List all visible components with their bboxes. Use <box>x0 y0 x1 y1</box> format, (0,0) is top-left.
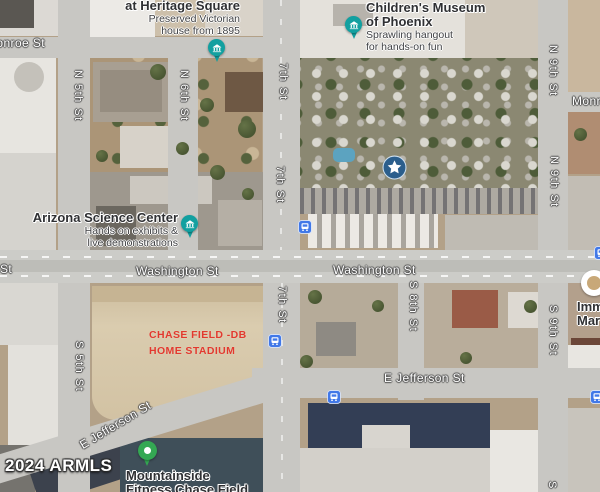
poi-label-heritage-square[interactable]: at Heritage Square Preserved Victorian h… <box>60 0 240 37</box>
building-block <box>14 62 44 92</box>
light-rail-tracks <box>0 260 600 272</box>
street-label-n-5th: N 5th St <box>72 70 84 122</box>
tree <box>524 300 537 313</box>
poi-subtitle: Preserved Victorian <box>60 13 240 25</box>
tree <box>242 188 254 200</box>
attribution-watermark: 2024 ARMLS <box>5 456 112 476</box>
poi-subtitle: Hands on exhibits & <box>20 225 178 237</box>
tree <box>574 128 587 141</box>
street-label-monroe: Monroe St <box>0 36 45 50</box>
museum-pin-icon <box>181 215 198 232</box>
poi-circle-glyph <box>587 276 600 290</box>
tree <box>300 355 313 368</box>
building-block <box>568 176 600 250</box>
street-label-jefferson-east: E Jefferson St <box>384 371 465 385</box>
poi-label-right-edge-partial[interactable]: Imm Mar <box>577 300 600 328</box>
street-label-washington-east: Washington St <box>333 263 416 277</box>
tree <box>460 352 472 364</box>
museum-pin-science-center[interactable] <box>181 215 199 238</box>
building-block <box>563 408 600 492</box>
poi-subtitle: house from 1895 <box>60 25 240 37</box>
tree <box>200 98 214 112</box>
building-block <box>218 200 262 246</box>
building-block <box>316 322 356 356</box>
tree <box>176 142 189 155</box>
building-block <box>490 430 538 492</box>
street-label-washington-west: Washington St <box>136 264 219 278</box>
museum-pin-icon <box>345 16 362 33</box>
tree <box>372 300 384 312</box>
building-block <box>0 283 66 345</box>
brick-building <box>452 290 498 328</box>
transit-station-icon[interactable] <box>327 390 341 404</box>
tree <box>150 64 166 80</box>
street-label-7th-3: 7th St <box>276 286 288 324</box>
poi-title: Children's Museum <box>366 1 485 15</box>
map-canvas[interactable]: Monroe St Monroe St N 5th St N 6th St St… <box>0 0 600 492</box>
tree <box>210 165 225 180</box>
building-block <box>92 286 292 302</box>
street-label-7th-1: 7th St <box>277 63 289 101</box>
street-label-s-9th: S 9th St <box>547 305 559 356</box>
street-label-washington-partial: St <box>0 262 12 276</box>
building-block <box>568 112 600 174</box>
building-block <box>568 0 600 92</box>
stadium-label-line: HOME STADIUM <box>149 343 247 359</box>
poi-title: Mountainside <box>126 469 248 483</box>
parking-lot <box>300 188 545 214</box>
tree <box>96 150 108 162</box>
poi-label-mountainside-fitness[interactable]: Mountainside Fitness Chase Field <box>126 469 248 492</box>
poi-title: of Phoenix <box>366 15 485 29</box>
building-block <box>225 72 263 112</box>
street-label-s-8th: S 8th St <box>407 281 419 332</box>
poi-label-science-center[interactable]: Arizona Science Center Hands on exhibits… <box>20 211 178 249</box>
chase-field-stadium-label: CHASE FIELD -DB HOME STADIUM <box>149 327 247 359</box>
pool <box>333 148 355 162</box>
street-label-s-5th: S 5th St <box>73 341 85 392</box>
transit-station-icon[interactable] <box>594 246 600 260</box>
gym-pin-icon <box>138 441 157 460</box>
transit-station-icon[interactable] <box>298 220 312 234</box>
street-label-7th-2: 7th St <box>274 166 286 204</box>
building-block <box>300 448 490 492</box>
lane-marking <box>280 0 282 250</box>
street-label-n-6th: N 6th St <box>178 70 190 122</box>
saved-star-marker[interactable] <box>382 155 407 180</box>
lane-marking <box>0 256 600 258</box>
stadium-label-line: CHASE FIELD -DB <box>149 327 247 343</box>
poi-title: Mar <box>577 314 600 328</box>
museum-pin-heritage[interactable] <box>208 39 226 62</box>
tree <box>238 120 256 138</box>
street-label-monroe-east: Monroe <box>572 94 600 108</box>
road-monroe-st <box>0 37 300 58</box>
tree <box>308 290 322 304</box>
gym-pin-mountainside[interactable] <box>138 441 156 466</box>
street-label-n-9th-1: N 9th St <box>547 45 559 97</box>
street-label-s-9th-partial: S 9th St <box>546 481 558 492</box>
poi-subtitle: live demonstrations <box>20 237 178 249</box>
poi-subtitle: for hands-on fun <box>366 41 485 53</box>
poi-circle-icon[interactable] <box>581 270 600 296</box>
poi-subtitle: Sprawling hangout <box>366 29 485 41</box>
star-icon <box>382 155 407 180</box>
building-block <box>362 425 410 448</box>
poi-title: Imm <box>577 300 600 314</box>
poi-title: at Heritage Square <box>60 0 240 13</box>
condo-complex-block <box>300 58 540 188</box>
museum-pin-icon <box>208 39 225 56</box>
museum-pin-childrens-museum[interactable] <box>345 16 363 39</box>
townhouse-row <box>308 214 438 248</box>
poi-title: Fitness Chase Field <box>126 483 248 492</box>
transit-station-icon[interactable] <box>590 390 600 404</box>
transit-station-icon[interactable] <box>268 334 282 348</box>
lane-marking <box>0 275 600 277</box>
poi-label-childrens-museum[interactable]: Children's Museum of Phoenix Sprawling h… <box>366 1 485 53</box>
building-block <box>0 0 34 28</box>
poi-title: Arizona Science Center <box>20 211 178 225</box>
street-label-n-9th-2: N 9th St <box>548 156 560 208</box>
building-block <box>445 215 540 250</box>
